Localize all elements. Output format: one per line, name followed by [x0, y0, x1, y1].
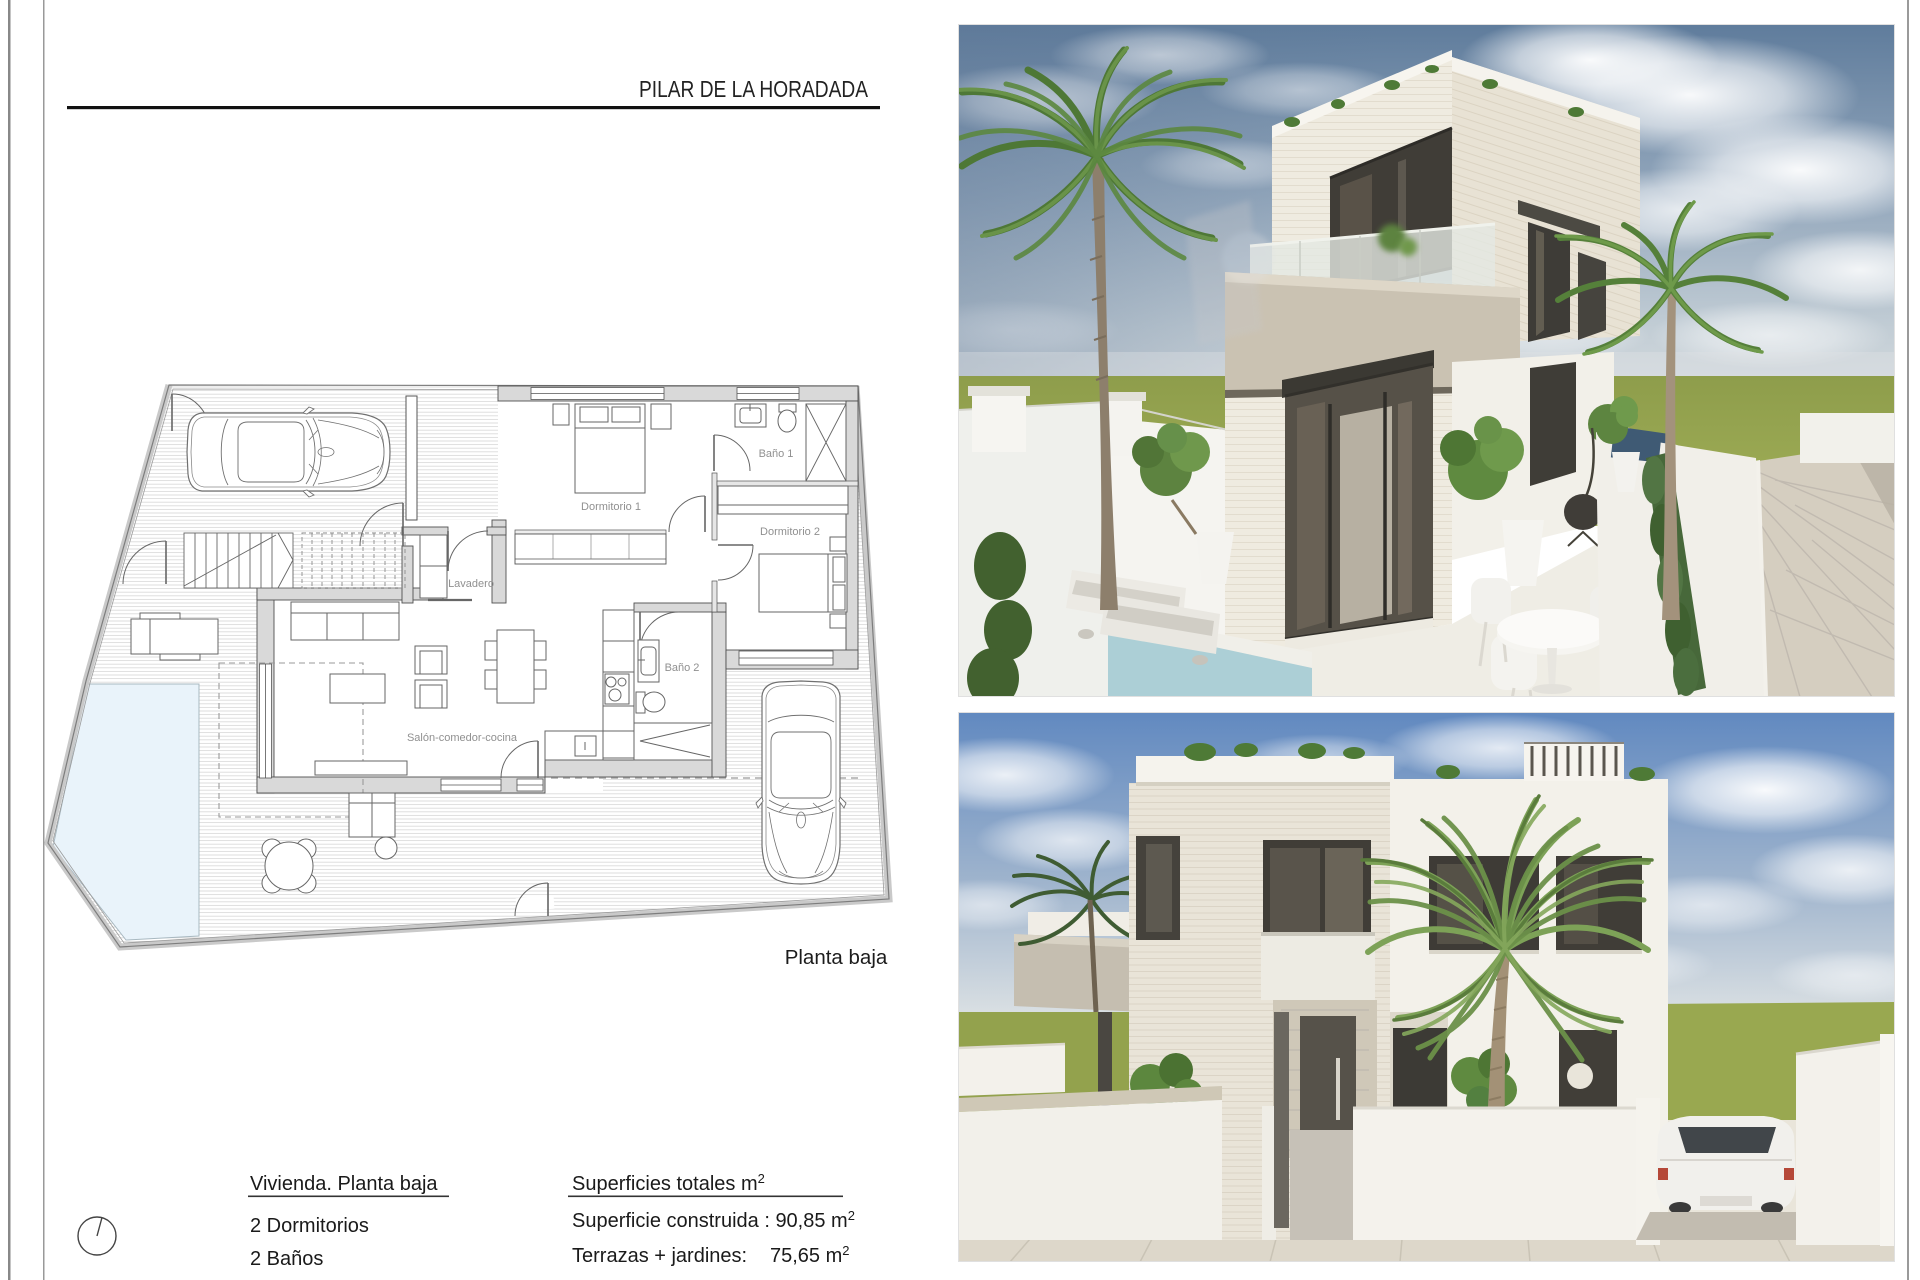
svg-text:Baño 2: Baño 2: [665, 662, 700, 674]
svg-text:Superficies totales m2: Superficies totales m2: [572, 1171, 765, 1195]
svg-text:Salón-comedor-cocina: Salón-comedor-cocina: [407, 732, 518, 744]
svg-text:Superficie construida : 90,85: Superficie construida : 90,85 m2: [572, 1208, 855, 1232]
svg-text:PILAR DE LA HORADADA: PILAR DE LA HORADADA: [639, 76, 868, 102]
svg-text:Vivienda. Planta baja: Vivienda. Planta baja: [250, 1173, 438, 1195]
svg-text:2 Dormitorios: 2 Dormitorios: [250, 1215, 369, 1237]
svg-text:75,65 m2: 75,65 m2: [770, 1243, 850, 1267]
svg-text:2 Baños: 2 Baños: [250, 1248, 323, 1270]
svg-text:Terrazas + jardines:: Terrazas + jardines:: [572, 1245, 747, 1267]
svg-text:Dormitorio 2: Dormitorio 2: [760, 526, 820, 538]
svg-text:Lavadero: Lavadero: [448, 578, 494, 590]
svg-text:Baño 1: Baño 1: [759, 448, 794, 460]
svg-text:Dormitorio 1: Dormitorio 1: [581, 501, 641, 513]
svg-text:Planta baja: Planta baja: [785, 946, 888, 969]
